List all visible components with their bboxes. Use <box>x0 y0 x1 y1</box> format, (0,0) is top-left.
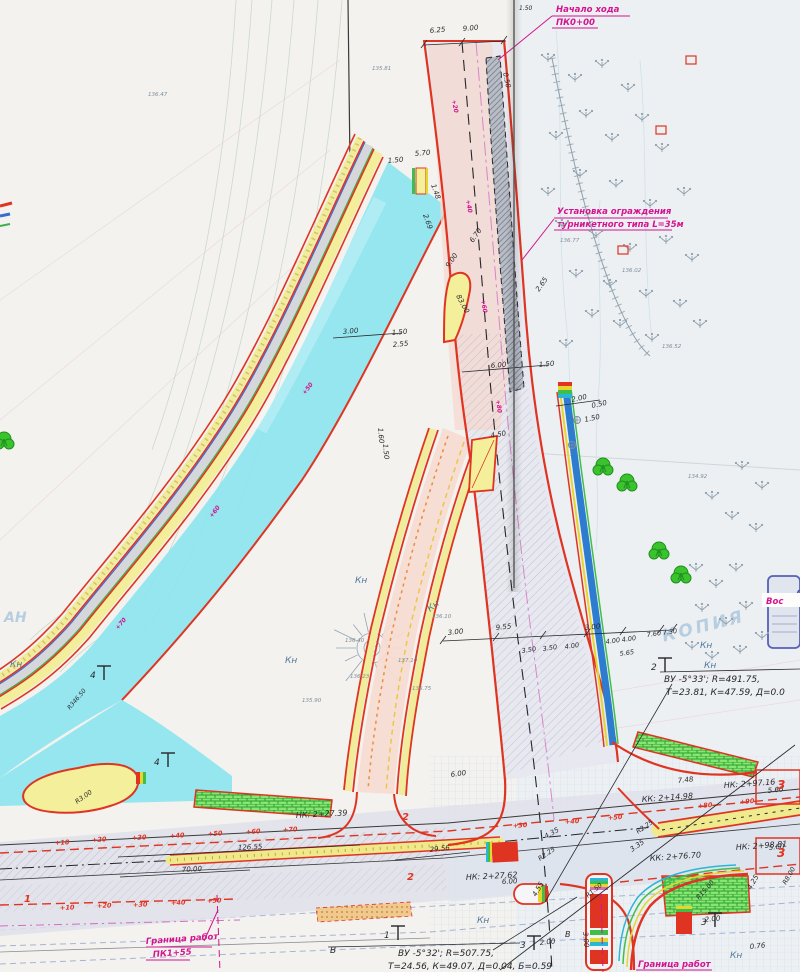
dimension-label: +80 <box>698 801 713 810</box>
callout-start-line1: Начало хода <box>556 5 620 15</box>
flag-number: 4 <box>90 671 96 681</box>
red-refuge-block <box>491 841 518 862</box>
dimension-label: +50 <box>208 829 223 838</box>
elevation-label: 136.10 <box>432 614 452 620</box>
kn-label: Кн <box>10 660 22 670</box>
dimension-label: +90 <box>740 797 755 806</box>
flag-number: 4 <box>154 758 160 768</box>
dimension-label: +30 <box>132 833 147 842</box>
flag-number: 2 <box>651 663 657 673</box>
kn-label: Кн <box>355 576 367 586</box>
dimension-label: +40 <box>565 817 580 826</box>
dimension-label: +20 <box>97 901 112 910</box>
dimension-label: +60 <box>246 827 261 836</box>
dimension-label: 1.50 <box>519 5 533 12</box>
dimension-label: 9.55 <box>495 622 512 632</box>
elevation-label: 136.52 <box>662 344 682 350</box>
elevation-label: 136.47 <box>148 92 168 98</box>
dimension-label: 3.00 <box>581 931 590 948</box>
dimension-label: 2.00 <box>704 914 721 924</box>
dimension-label: 6.00 <box>502 877 519 886</box>
dimension-label: 3.00 <box>447 627 464 637</box>
flag-number: 3 <box>520 941 526 951</box>
callout-vos: Вос <box>766 597 783 607</box>
elevation-label: 136.77 <box>560 238 580 244</box>
dimension-label: 9.00 <box>462 24 479 33</box>
callout-start-line2: ПК0+00 <box>556 18 595 28</box>
plan-svg: Начало хода ПК0+00 Установка ограждения … <box>0 0 800 972</box>
dimension-label: 3.00 <box>584 622 601 632</box>
dimension-label: 5.70 <box>414 149 431 158</box>
elevation-label: 136.40 <box>345 638 365 644</box>
dimension-label: 2.55 <box>392 340 409 349</box>
zone-number: 2 <box>402 812 409 823</box>
elevation-label: 136.23 <box>350 674 370 680</box>
dimension-label: В <box>565 930 571 939</box>
curve-note-1-line1: ВУ -5°33'; R=491.75, <box>664 675 760 685</box>
zone-number: 3 <box>777 846 785 860</box>
flag-number: 3 <box>701 918 707 928</box>
curve-note-2-line1: ВУ -5°32'; R=507.75, <box>398 949 494 959</box>
dimension-label: +40 <box>170 831 185 840</box>
curve-note-1-line2: Т=23.81, К=47.59, Д=0.0 <box>666 688 785 698</box>
dimension-label: +20 <box>92 835 107 844</box>
flag-number: 1 <box>384 931 390 941</box>
kn-label: Кн <box>477 916 489 926</box>
red-block-small <box>676 906 692 934</box>
curve-note-2-line2: Т=24.56, К=49.07, Д=0.04, Б=0.59 <box>388 962 552 972</box>
kn-label: Кн <box>730 951 742 961</box>
kn-label: Кн <box>704 661 716 671</box>
elevation-label: 134.92 <box>688 474 708 480</box>
kn-label: Кн <box>700 641 712 651</box>
dimension-label: +10 <box>55 838 70 847</box>
dimension-label: В <box>330 946 336 956</box>
approval-stamp <box>768 576 800 648</box>
dimension-label: 0.76 <box>749 941 766 951</box>
dimension-label: +40 <box>171 898 186 907</box>
dimension-label: 1.50 <box>538 360 555 369</box>
elevation-label: 136.02 <box>622 268 642 274</box>
dimension-label: 6.25 <box>429 26 446 35</box>
dimension-label: +30 <box>133 900 148 909</box>
dimension-label: +50 <box>608 813 623 822</box>
dimension-label: +50 <box>207 896 222 905</box>
dimension-label: +10 <box>60 903 75 912</box>
elevation-label: 136.75 <box>412 686 432 692</box>
dimension-label: 3.00 <box>342 327 359 336</box>
elevation-label: 137.10 <box>398 658 418 664</box>
dimension-label: 2.00 <box>539 937 556 947</box>
dimension-label: 70.00 <box>182 865 203 874</box>
zone-number: 3 <box>777 778 785 792</box>
scanned-plan-sheet: Начало хода ПК0+00 Установка ограждения … <box>0 0 800 972</box>
elevation-label: 135.90 <box>302 698 322 704</box>
callout-fence-line2: турникетного типа L=35м <box>557 220 684 230</box>
dimension-label: +70 <box>283 825 298 834</box>
dimension-label: 126.55 <box>238 843 263 852</box>
corner-mark: АН <box>3 610 27 626</box>
dimension-label: 1.60 <box>376 427 385 444</box>
callout-boundary-right: Граница работ <box>638 959 712 970</box>
curb-rainbow-small <box>412 168 428 194</box>
elevation-label: 135.81 <box>372 66 391 72</box>
zone-number: 1 <box>24 894 31 905</box>
callout-fence-line1: Установка ограждения <box>557 207 672 217</box>
dimension-label: 7.48 <box>677 775 694 785</box>
dimension-label: 6.00 <box>490 361 507 370</box>
dimension-label: +30 <box>513 821 528 830</box>
kn-label: Кн <box>285 656 297 666</box>
dimension-label: 1.50 <box>381 443 390 460</box>
dimension-label: 1.50 <box>391 328 408 337</box>
refuge-rainbow <box>486 842 492 862</box>
dimension-label: 1.50 <box>387 156 404 165</box>
zone-number: 2 <box>407 872 414 883</box>
rainbow-cap-island-r300 <box>136 772 146 784</box>
